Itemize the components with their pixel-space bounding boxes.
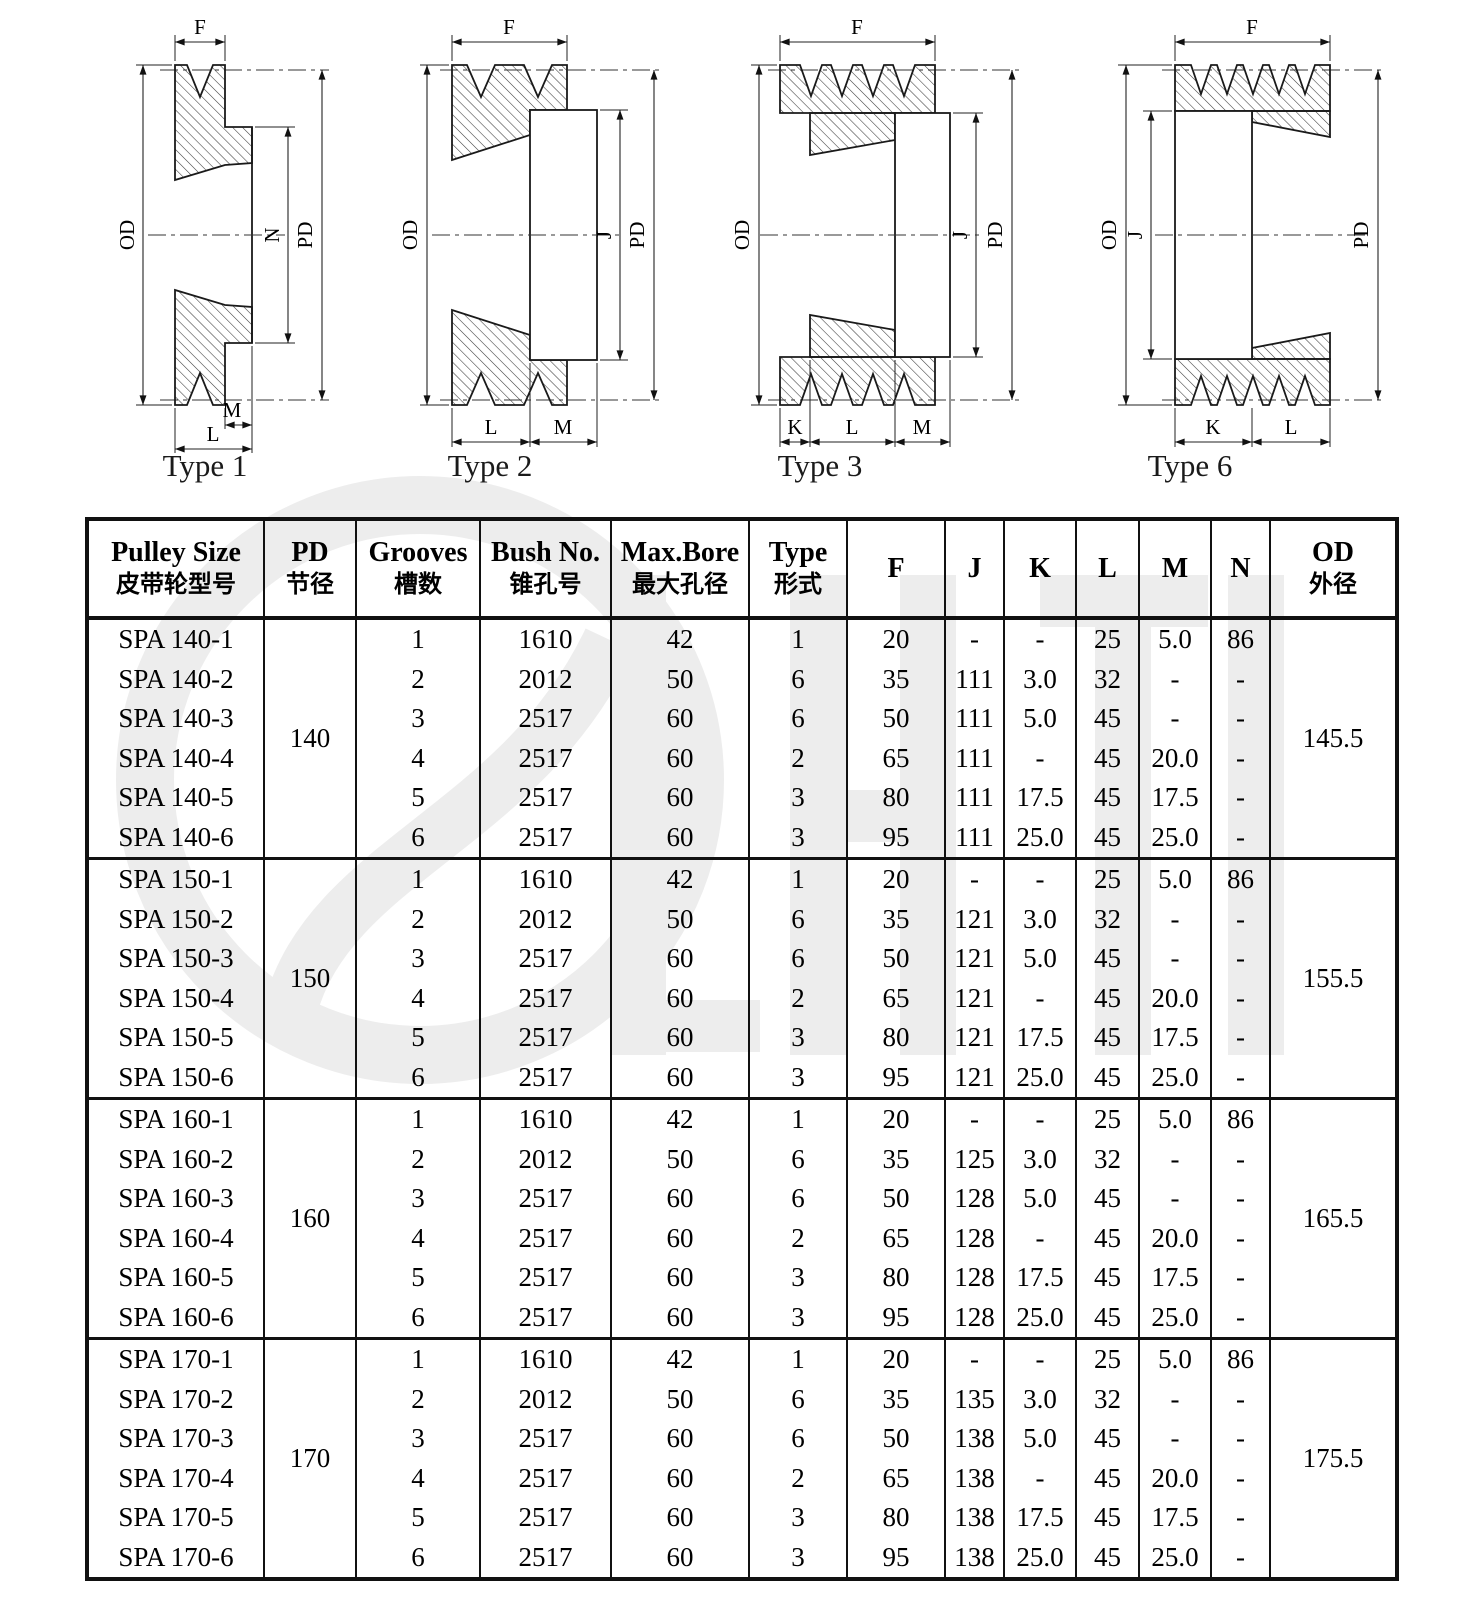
cell-pulley-size: SPA 170-6: [87, 1538, 264, 1580]
cell-type: 1: [749, 618, 847, 660]
cell-max-bore: 60: [611, 1258, 749, 1298]
cell-l: 25: [1076, 1339, 1139, 1380]
header-row: Pulley Size 皮带轮型号 PD 节径 Grooves 槽数 Bush …: [87, 519, 1397, 618]
cell-j: 128: [945, 1298, 1004, 1339]
cell-grooves: 4: [356, 1459, 480, 1499]
cell-bush-no: 2517: [480, 979, 611, 1019]
dim-label-K: K: [787, 415, 802, 439]
cell-max-bore: 60: [611, 1219, 749, 1259]
cell-type: 3: [749, 818, 847, 859]
cell-j: 111: [945, 660, 1004, 700]
header-zh: 皮带轮型号: [89, 570, 263, 601]
dim-label-M: M: [223, 398, 242, 422]
cell-f: 65: [847, 739, 945, 779]
cell-l: 45: [1076, 1498, 1139, 1538]
header-en: K: [1005, 551, 1075, 586]
col-header-type: Type 形式: [749, 519, 847, 618]
cell-grooves: 2: [356, 900, 480, 940]
table-header: Pulley Size 皮带轮型号 PD 节径 Grooves 槽数 Bush …: [87, 519, 1397, 618]
table-row: SPA 160-11601161042120--255.086165.5: [87, 1099, 1397, 1140]
header-zh: 节径: [265, 570, 355, 601]
cell-type: 6: [749, 1419, 847, 1459]
cell-n: -: [1211, 939, 1270, 979]
cell-bush-no: 2517: [480, 739, 611, 779]
cell-f: 20: [847, 1099, 945, 1140]
cell-j: 111: [945, 699, 1004, 739]
cell-f: 65: [847, 1459, 945, 1499]
cell-max-bore: 60: [611, 778, 749, 818]
drawing-caption-type-6: Type 6: [1130, 448, 1250, 488]
cell-f: 95: [847, 818, 945, 859]
cell-l: 45: [1076, 939, 1139, 979]
cell-m: 20.0: [1139, 979, 1211, 1019]
cell-max-bore: 60: [611, 1498, 749, 1538]
cell-m: 20.0: [1139, 1219, 1211, 1259]
cell-grooves: 3: [356, 699, 480, 739]
cell-n: 86: [1211, 1339, 1270, 1380]
cell-bush-no: 2517: [480, 1538, 611, 1580]
cell-l: 32: [1076, 660, 1139, 700]
cell-bush-no: 2517: [480, 939, 611, 979]
cell-n: -: [1211, 1179, 1270, 1219]
cell-pulley-size: SPA 150-6: [87, 1058, 264, 1099]
cell-bush-no: 2517: [480, 1298, 611, 1339]
cell-pulley-size: SPA 150-1: [87, 859, 264, 900]
cell-grooves: 3: [356, 1179, 480, 1219]
cell-bush-no: 2012: [480, 1380, 611, 1420]
cell-max-bore: 60: [611, 1538, 749, 1580]
cell-m: 25.0: [1139, 1538, 1211, 1580]
cell-k: -: [1004, 1339, 1076, 1380]
cell-f: 95: [847, 1538, 945, 1580]
cell-pulley-size: SPA 170-3: [87, 1419, 264, 1459]
cell-bush-no: 1610: [480, 1339, 611, 1380]
cell-n: 86: [1211, 859, 1270, 900]
dim-label-M: M: [913, 415, 932, 439]
cell-k: 3.0: [1004, 1380, 1076, 1420]
cell-j: 111: [945, 739, 1004, 779]
cell-pulley-size: SPA 160-2: [87, 1140, 264, 1180]
cell-bush-no: 1610: [480, 1099, 611, 1140]
cell-f: 80: [847, 1498, 945, 1538]
cell-m: -: [1139, 699, 1211, 739]
cell-l: 45: [1076, 1419, 1139, 1459]
cell-n: -: [1211, 900, 1270, 940]
cell-l: 25: [1076, 1099, 1139, 1140]
header-en: Bush No.: [481, 535, 610, 570]
cell-l: 45: [1076, 778, 1139, 818]
cell-n: -: [1211, 778, 1270, 818]
dim-label-L: L: [485, 415, 498, 439]
header-en: M: [1140, 551, 1210, 586]
header-zh: 槽数: [357, 570, 479, 601]
drawing-type-2: F OD J PD L M: [392, 5, 712, 465]
cell-n: -: [1211, 1459, 1270, 1499]
cell-type: 6: [749, 1380, 847, 1420]
rim-section-bottom: [1175, 359, 1330, 405]
dim-label-F: F: [1246, 15, 1258, 39]
cell-max-bore: 60: [611, 939, 749, 979]
cell-k: -: [1004, 618, 1076, 660]
cell-max-bore: 42: [611, 1099, 749, 1140]
cell-grooves: 1: [356, 618, 480, 660]
cell-grooves: 2: [356, 1380, 480, 1420]
cell-bush-no: 2517: [480, 1419, 611, 1459]
table-row: SPA 150-11501161042120--255.086155.5: [87, 859, 1397, 900]
cell-type: 3: [749, 1018, 847, 1058]
cell-m: -: [1139, 900, 1211, 940]
cell-f: 50: [847, 1179, 945, 1219]
cell-type: 6: [749, 939, 847, 979]
cell-j: 121: [945, 1018, 1004, 1058]
cell-f: 80: [847, 1018, 945, 1058]
cell-pulley-size: SPA 170-2: [87, 1380, 264, 1420]
technical-drawings: F OD N PD M L F: [0, 0, 1481, 515]
cell-n: -: [1211, 1258, 1270, 1298]
cell-m: 25.0: [1139, 818, 1211, 859]
cell-pulley-size: SPA 140-5: [87, 778, 264, 818]
dim-label-OD: OD: [115, 220, 139, 250]
cell-f: 80: [847, 1258, 945, 1298]
cell-f: 95: [847, 1298, 945, 1339]
cell-n: -: [1211, 660, 1270, 700]
cell-m: 5.0: [1139, 859, 1211, 900]
cell-m: -: [1139, 660, 1211, 700]
cell-bush-no: 2517: [480, 1179, 611, 1219]
dim-label-L: L: [207, 422, 220, 446]
catalog-page: F OD N PD M L F: [0, 0, 1481, 1599]
cell-n: -: [1211, 818, 1270, 859]
cell-j: 125: [945, 1140, 1004, 1180]
header-en: OD: [1271, 535, 1395, 570]
hub-section-bottom: [810, 315, 895, 357]
cell-n: -: [1211, 1018, 1270, 1058]
cell-f: 35: [847, 1380, 945, 1420]
cell-type: 3: [749, 1058, 847, 1099]
cell-j: 138: [945, 1538, 1004, 1580]
cell-n: -: [1211, 1538, 1270, 1580]
cell-l: 45: [1076, 1459, 1139, 1499]
rim-section-bottom: [175, 290, 252, 405]
cell-bush-no: 2517: [480, 1498, 611, 1538]
cell-n: -: [1211, 1498, 1270, 1538]
dim-label-OD: OD: [398, 220, 422, 250]
cell-l: 32: [1076, 1140, 1139, 1180]
cell-pulley-size: SPA 150-5: [87, 1018, 264, 1058]
dim-label-F: F: [851, 15, 863, 39]
hub-section-top: [810, 113, 895, 155]
dim-label-F: F: [503, 15, 515, 39]
cell-pd-merged: 140: [264, 618, 356, 859]
col-header-n: N: [1211, 519, 1270, 618]
cell-type: 6: [749, 660, 847, 700]
header-en: Max.Bore: [612, 535, 748, 570]
cell-max-bore: 60: [611, 1419, 749, 1459]
cell-l: 45: [1076, 1179, 1139, 1219]
cell-pd-merged: 160: [264, 1099, 356, 1339]
cell-n: 86: [1211, 618, 1270, 660]
hub-section-top: [1252, 111, 1330, 137]
header-en: L: [1077, 551, 1138, 586]
cell-pulley-size: SPA 160-3: [87, 1179, 264, 1219]
cell-j: -: [945, 1339, 1004, 1380]
cell-pulley-size: SPA 140-6: [87, 818, 264, 859]
cell-k: 3.0: [1004, 660, 1076, 700]
cell-f: 20: [847, 618, 945, 660]
header-en: PD: [265, 535, 355, 570]
cell-grooves: 5: [356, 1258, 480, 1298]
col-header-pulley-size: Pulley Size 皮带轮型号: [87, 519, 264, 618]
cell-m: -: [1139, 1179, 1211, 1219]
cell-grooves: 1: [356, 1339, 480, 1380]
cell-f: 35: [847, 1140, 945, 1180]
cell-max-bore: 50: [611, 900, 749, 940]
cell-type: 2: [749, 979, 847, 1019]
dim-label-PD: PD: [983, 222, 1007, 249]
cell-pulley-size: SPA 170-5: [87, 1498, 264, 1538]
cell-k: -: [1004, 1459, 1076, 1499]
header-en: Type: [750, 535, 846, 570]
dim-label-PD: PD: [625, 222, 649, 249]
cell-grooves: 3: [356, 939, 480, 979]
col-header-l: L: [1076, 519, 1139, 618]
header-en: Pulley Size: [89, 535, 263, 570]
cell-grooves: 3: [356, 1419, 480, 1459]
cell-max-bore: 60: [611, 1058, 749, 1099]
dim-label-J: J: [1123, 231, 1147, 239]
cell-k: -: [1004, 1099, 1076, 1140]
cell-grooves: 2: [356, 660, 480, 700]
cell-bush-no: 2517: [480, 1258, 611, 1298]
dim-label-PD: PD: [293, 222, 317, 249]
cell-j: -: [945, 859, 1004, 900]
cell-max-bore: 50: [611, 660, 749, 700]
cell-k: 5.0: [1004, 1179, 1076, 1219]
cell-bush-no: 2517: [480, 699, 611, 739]
cell-m: -: [1139, 1380, 1211, 1420]
cell-type: 6: [749, 1179, 847, 1219]
cell-grooves: 6: [356, 818, 480, 859]
cell-grooves: 2: [356, 1140, 480, 1180]
cell-type: 3: [749, 1538, 847, 1580]
cell-od-merged: 165.5: [1270, 1099, 1397, 1339]
table-row: SPA 170-11701161042120--255.086175.5: [87, 1339, 1397, 1380]
cell-j: 138: [945, 1498, 1004, 1538]
header-zh: 形式: [750, 570, 846, 601]
cell-type: 3: [749, 1258, 847, 1298]
cell-pulley-size: SPA 140-3: [87, 699, 264, 739]
cell-m: -: [1139, 1140, 1211, 1180]
cell-type: 2: [749, 739, 847, 779]
cell-max-bore: 60: [611, 1298, 749, 1339]
cell-n: -: [1211, 979, 1270, 1019]
cell-max-bore: 42: [611, 859, 749, 900]
header-zh: 锥孔号: [481, 570, 610, 601]
cell-f: 20: [847, 1339, 945, 1380]
cell-f: 50: [847, 939, 945, 979]
cell-l: 45: [1076, 699, 1139, 739]
cell-pulley-size: SPA 160-4: [87, 1219, 264, 1259]
dim-label-L: L: [1285, 415, 1298, 439]
cell-n: -: [1211, 739, 1270, 779]
cell-j: 138: [945, 1419, 1004, 1459]
cell-f: 95: [847, 1058, 945, 1099]
cell-f: 65: [847, 1219, 945, 1259]
cell-k: -: [1004, 859, 1076, 900]
drawing-caption-type-2: Type 2: [430, 448, 550, 488]
cell-j: 111: [945, 818, 1004, 859]
dim-label-OD: OD: [1097, 220, 1121, 250]
cell-l: 45: [1076, 739, 1139, 779]
cell-f: 35: [847, 660, 945, 700]
cell-n: 86: [1211, 1099, 1270, 1140]
cell-j: 121: [945, 1058, 1004, 1099]
cell-f: 35: [847, 900, 945, 940]
drawing-caption-type-1: Type 1: [145, 448, 265, 488]
cell-grooves: 6: [356, 1298, 480, 1339]
cell-bush-no: 2517: [480, 1219, 611, 1259]
cell-grooves: 1: [356, 1099, 480, 1140]
cell-pulley-size: SPA 140-4: [87, 739, 264, 779]
col-header-f: F: [847, 519, 945, 618]
cell-l: 25: [1076, 859, 1139, 900]
cell-pulley-size: SPA 160-6: [87, 1298, 264, 1339]
cell-type: 1: [749, 859, 847, 900]
drawing-type-6: F OD J PD K L: [1080, 5, 1480, 465]
cell-l: 32: [1076, 900, 1139, 940]
col-header-od: OD 外径: [1270, 519, 1397, 618]
cell-l: 45: [1076, 1298, 1139, 1339]
cell-bush-no: 2517: [480, 1459, 611, 1499]
cell-k: 25.0: [1004, 1538, 1076, 1580]
cell-l: 45: [1076, 1018, 1139, 1058]
header-zh: 最大孔径: [612, 570, 748, 601]
cell-j: 135: [945, 1380, 1004, 1420]
cell-max-bore: 60: [611, 699, 749, 739]
cell-m: 20.0: [1139, 739, 1211, 779]
cell-pd-merged: 170: [264, 1339, 356, 1580]
cell-od-merged: 145.5: [1270, 618, 1397, 859]
cell-max-bore: 60: [611, 1179, 749, 1219]
header-en: N: [1212, 551, 1269, 586]
cell-type: 6: [749, 900, 847, 940]
cell-n: -: [1211, 1298, 1270, 1339]
dim-label-N: N: [260, 227, 284, 242]
cell-bush-no: 1610: [480, 859, 611, 900]
cell-pulley-size: SPA 170-4: [87, 1459, 264, 1499]
cell-type: 1: [749, 1339, 847, 1380]
cell-m: 25.0: [1139, 1298, 1211, 1339]
cell-n: -: [1211, 699, 1270, 739]
cell-l: 25: [1076, 618, 1139, 660]
dim-label-K: K: [1205, 415, 1220, 439]
cell-type: 2: [749, 1459, 847, 1499]
cell-k: 17.5: [1004, 1498, 1076, 1538]
cell-n: -: [1211, 1380, 1270, 1420]
cell-grooves: 5: [356, 1018, 480, 1058]
cell-l: 45: [1076, 1219, 1139, 1259]
cell-m: 17.5: [1139, 1498, 1211, 1538]
col-header-j: J: [945, 519, 1004, 618]
hub-section-bottom: [1252, 333, 1330, 359]
cell-m: 5.0: [1139, 1339, 1211, 1380]
dim-label-J: J: [592, 231, 616, 239]
cell-j: 121: [945, 939, 1004, 979]
cell-j: 138: [945, 1459, 1004, 1499]
cell-k: -: [1004, 1219, 1076, 1259]
col-header-k: K: [1004, 519, 1076, 618]
cell-od-merged: 175.5: [1270, 1339, 1397, 1580]
cell-max-bore: 60: [611, 818, 749, 859]
cell-k: 5.0: [1004, 699, 1076, 739]
cell-k: 17.5: [1004, 778, 1076, 818]
cell-od-merged: 155.5: [1270, 859, 1397, 1099]
cell-bush-no: 1610: [480, 618, 611, 660]
cell-k: 17.5: [1004, 1258, 1076, 1298]
cell-k: 25.0: [1004, 1298, 1076, 1339]
cell-m: 17.5: [1139, 778, 1211, 818]
cell-m: 20.0: [1139, 1459, 1211, 1499]
rim-section-top: [175, 65, 252, 180]
cell-j: 111: [945, 778, 1004, 818]
cell-l: 32: [1076, 1380, 1139, 1420]
drawing-type-3: F OD J PD K L M: [735, 5, 1080, 465]
cell-max-bore: 60: [611, 739, 749, 779]
cell-bush-no: 2517: [480, 778, 611, 818]
header-en: J: [946, 551, 1003, 586]
cell-max-bore: 60: [611, 979, 749, 1019]
cell-pulley-size: SPA 150-3: [87, 939, 264, 979]
header-zh: 外径: [1271, 570, 1395, 601]
cell-k: 5.0: [1004, 1419, 1076, 1459]
cell-m: 5.0: [1139, 1099, 1211, 1140]
cell-l: 45: [1076, 1058, 1139, 1099]
cell-type: 1: [749, 1099, 847, 1140]
cell-pulley-size: SPA 140-2: [87, 660, 264, 700]
dim-label-OD: OD: [735, 220, 754, 250]
cell-bush-no: 2012: [480, 660, 611, 700]
cell-grooves: 4: [356, 979, 480, 1019]
cell-n: -: [1211, 1140, 1270, 1180]
cell-grooves: 1: [356, 859, 480, 900]
col-header-pd: PD 节径: [264, 519, 356, 618]
cell-j: -: [945, 1099, 1004, 1140]
cell-type: 2: [749, 1219, 847, 1259]
cell-grooves: 6: [356, 1058, 480, 1099]
cell-max-bore: 50: [611, 1380, 749, 1420]
cell-j: 121: [945, 979, 1004, 1019]
cell-m: 5.0: [1139, 618, 1211, 660]
cell-j: 128: [945, 1258, 1004, 1298]
cell-j: 128: [945, 1219, 1004, 1259]
table-body: SPA 140-11401161042120--255.086145.5SPA …: [87, 618, 1397, 1579]
cell-grooves: 5: [356, 778, 480, 818]
cell-bush-no: 2012: [480, 900, 611, 940]
cell-l: 45: [1076, 1538, 1139, 1580]
cell-grooves: 4: [356, 1219, 480, 1259]
cell-pulley-size: SPA 150-2: [87, 900, 264, 940]
col-header-bush-no: Bush No. 锥孔号: [480, 519, 611, 618]
cell-bush-no: 2517: [480, 1018, 611, 1058]
cell-max-bore: 60: [611, 1018, 749, 1058]
spec-table: Pulley Size 皮带轮型号 PD 节径 Grooves 槽数 Bush …: [85, 517, 1399, 1581]
cell-f: 80: [847, 778, 945, 818]
col-header-m: M: [1139, 519, 1211, 618]
cell-f: 20: [847, 859, 945, 900]
cell-bush-no: 2012: [480, 1140, 611, 1180]
cell-pulley-size: SPA 150-4: [87, 979, 264, 1019]
cell-k: -: [1004, 979, 1076, 1019]
